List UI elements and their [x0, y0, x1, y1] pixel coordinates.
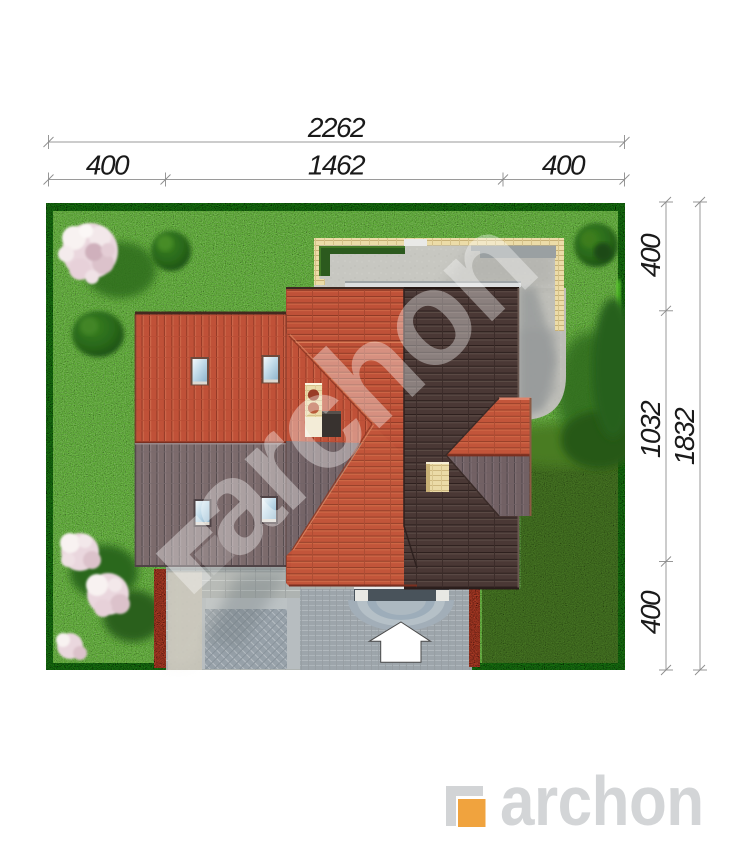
svg-text:1032: 1032 — [635, 400, 666, 458]
svg-text:2262: 2262 — [307, 112, 366, 143]
svg-text:400: 400 — [635, 590, 666, 634]
svg-text:1462: 1462 — [308, 150, 366, 181]
svg-text:400: 400 — [542, 150, 586, 181]
svg-text:1832: 1832 — [669, 407, 700, 465]
svg-text:400: 400 — [635, 233, 666, 277]
svg-text:archon: archon — [500, 762, 704, 840]
svg-text:400: 400 — [86, 150, 130, 181]
